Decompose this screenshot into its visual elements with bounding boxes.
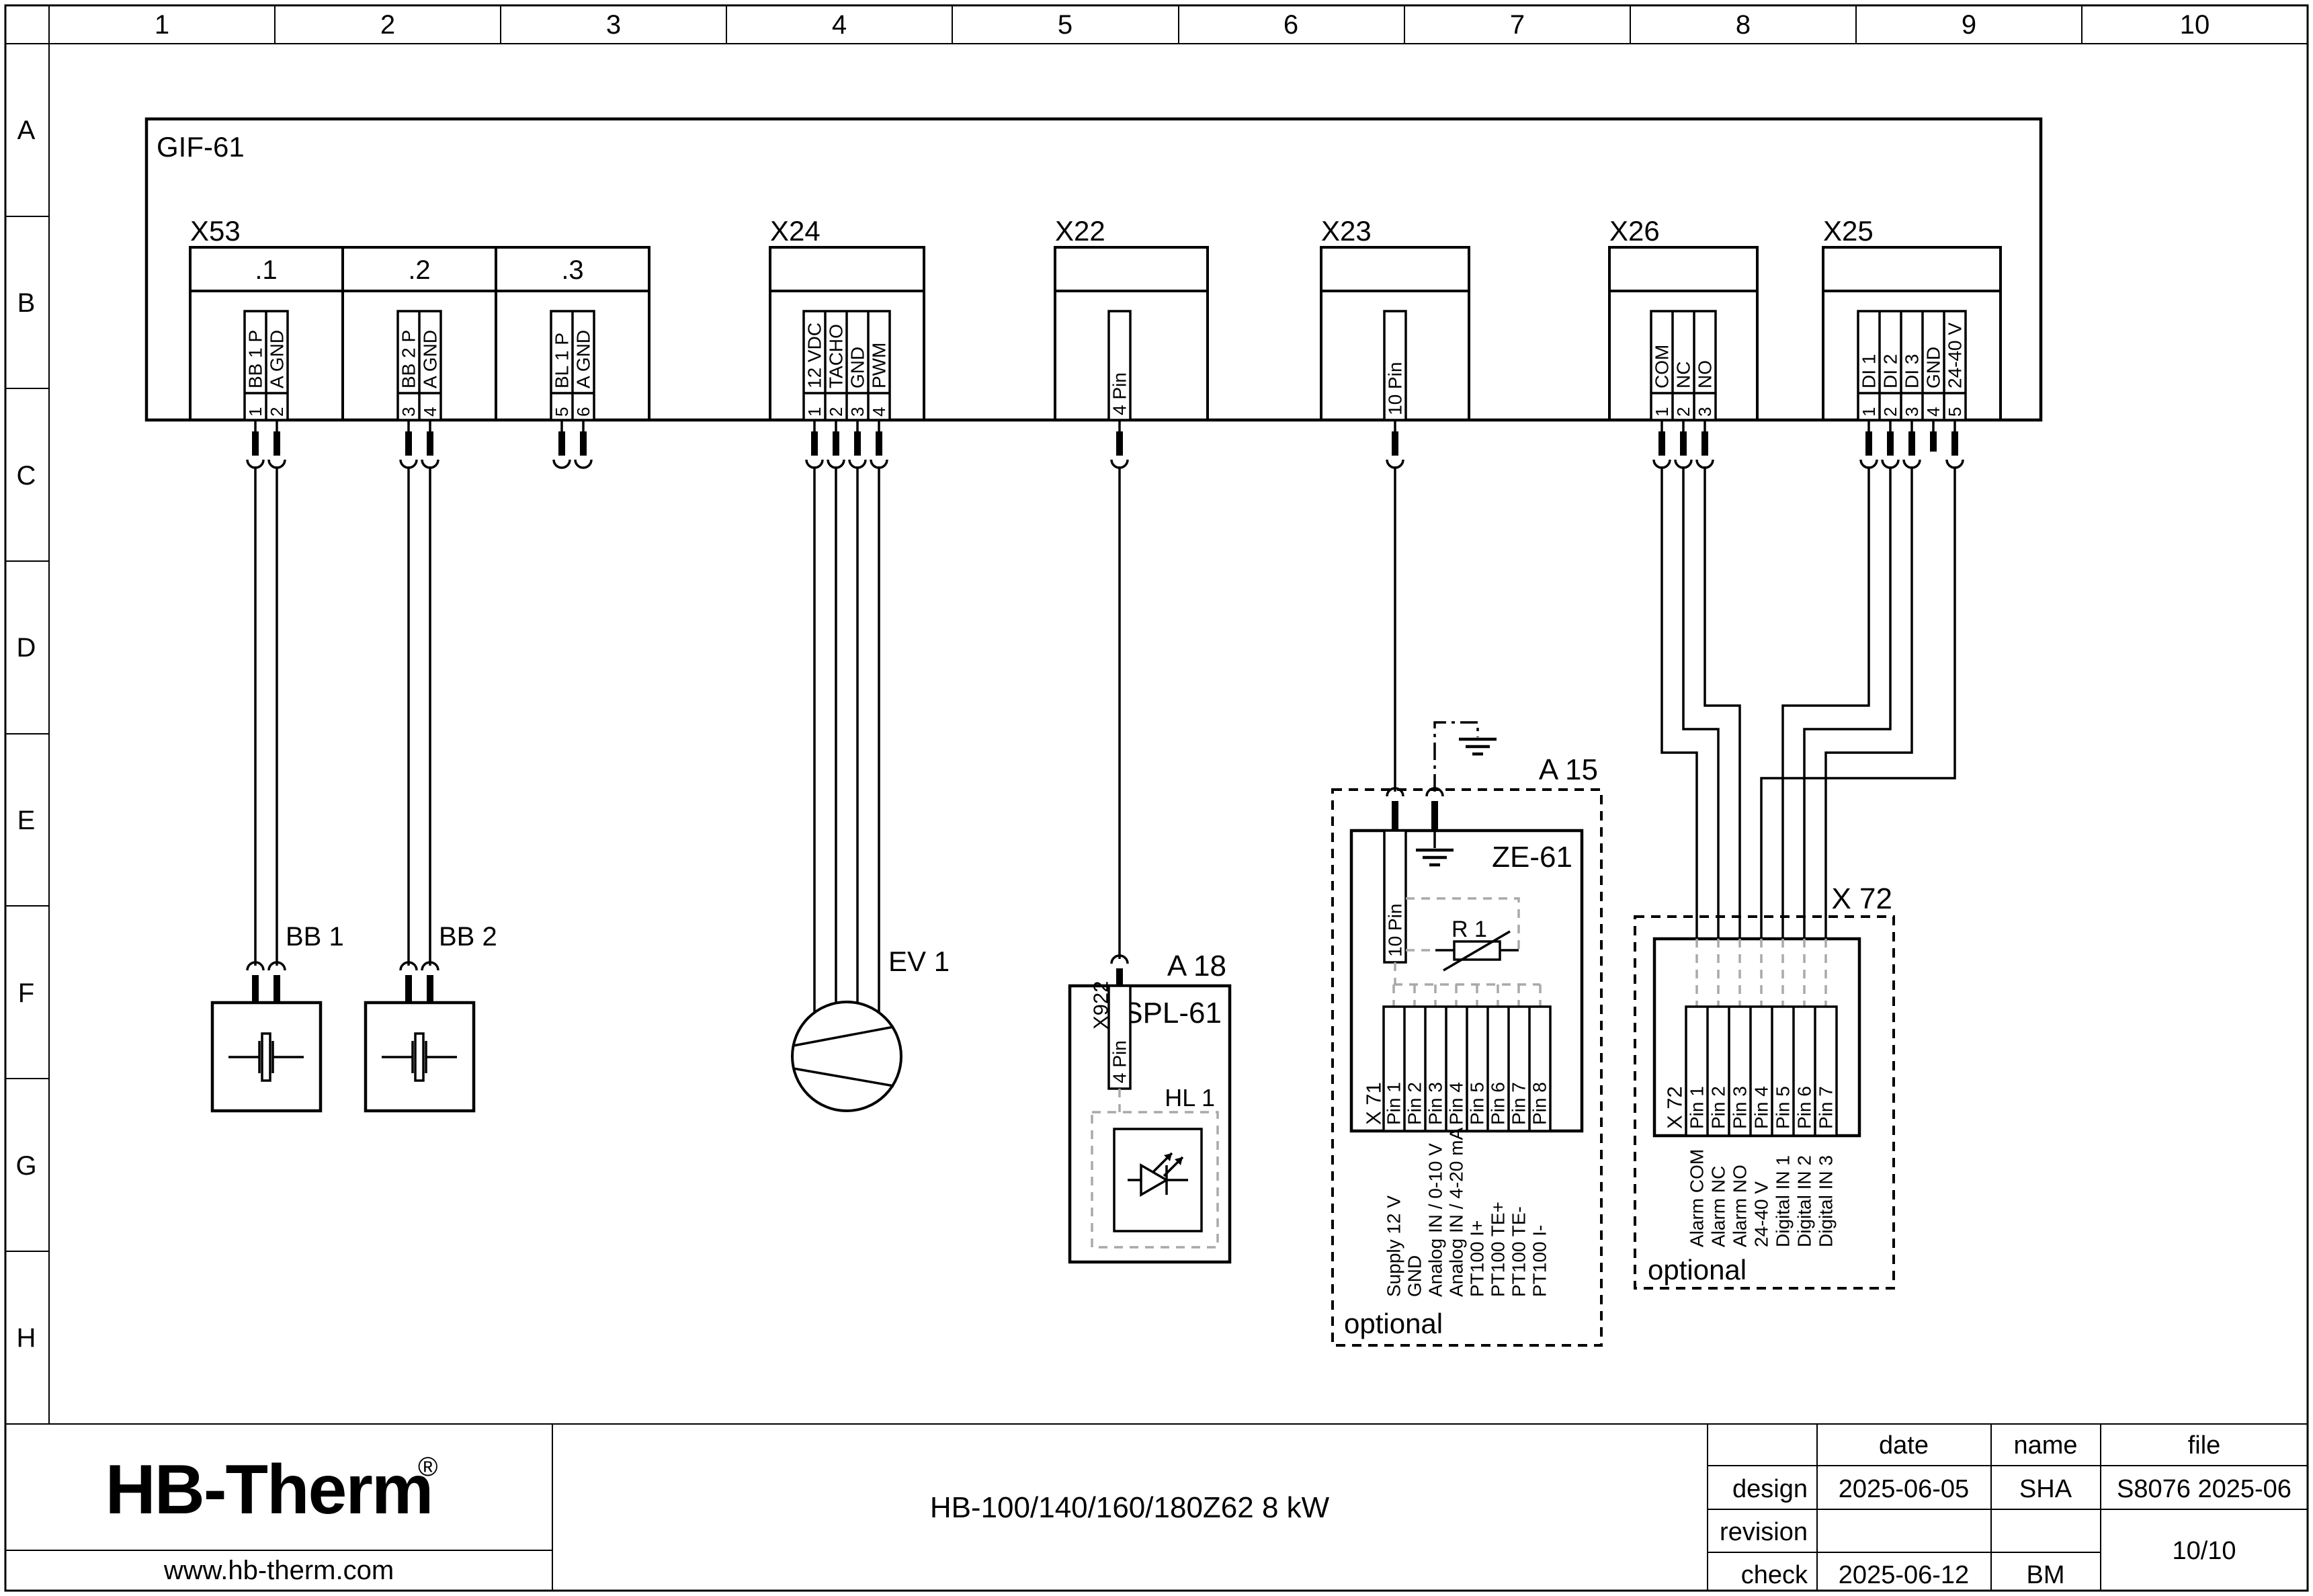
- x53-cell-1-label: .1: [255, 255, 277, 285]
- x26-pin-1-num: 1: [1652, 407, 1672, 417]
- x26-pin-2-name: NC: [1673, 362, 1694, 388]
- x24-pin-2-num: 2: [826, 407, 846, 417]
- x53-pin-1-name: BB 1 P: [245, 330, 266, 388]
- x26-pin-2-num: 2: [1673, 407, 1693, 417]
- x25-pin-3-num: 3: [1902, 407, 1922, 417]
- x53-pin-2-name: A GND: [267, 330, 288, 388]
- ruler-row-f: F: [18, 978, 34, 1008]
- ze61-module-label: ZE-61: [1492, 841, 1572, 874]
- x71-signal-6: PT100 TE+: [1488, 1202, 1509, 1297]
- x53-pin-5-num: 5: [552, 407, 572, 417]
- ruler-col-3: 3: [606, 10, 621, 40]
- ruler-col-10: 10: [2180, 10, 2210, 40]
- ruler-row-b: B: [17, 288, 36, 318]
- ruler-col-6: 6: [1284, 10, 1298, 40]
- x72-strip-label: X 72: [1663, 1086, 1687, 1129]
- gif-61-label: GIF-61: [157, 131, 245, 163]
- x24-pin-3-name: GND: [847, 347, 868, 388]
- x53-pin-6-name: A GND: [573, 330, 594, 388]
- ruler-row-e: E: [17, 806, 36, 835]
- x22-pin-label: 4 Pin: [1109, 372, 1130, 415]
- drawing-title: HB-100/140/160/180Z62 8 kW: [930, 1491, 1330, 1524]
- page-number: 10/10: [2172, 1537, 2236, 1565]
- col-header-date: date: [1879, 1431, 1929, 1460]
- x53-cell-3-label: .3: [561, 255, 583, 285]
- x25-pin-1-name: DI 1: [1859, 354, 1880, 388]
- x71-signal-3: Analog IN / 0-10 V: [1425, 1143, 1446, 1297]
- x25-pin-5-name: 24-40 V: [1945, 323, 1966, 388]
- x25-pin-4-num: 4: [1923, 407, 1943, 417]
- r1-label: R 1: [1452, 917, 1487, 942]
- x24-pin-1-name: 12 VDC: [804, 323, 825, 388]
- drawing-frame: 1 2 3 4 5 6 7 8 9 10 A B C D E F G H: [5, 5, 2308, 1591]
- check-name: BM: [2027, 1561, 2065, 1589]
- row-label-design: design: [1732, 1475, 1808, 1503]
- file-id: S8076 2025-06: [2117, 1475, 2291, 1503]
- x53-pin-5-name: BL 1 P: [552, 333, 573, 388]
- x53-pin-3-name: BB 2 P: [398, 330, 419, 388]
- x72-signal-6: Digital IN 2: [1794, 1155, 1815, 1247]
- a18-x922-label: X922: [1089, 981, 1113, 1030]
- x71-signal-1: Supply 12 V: [1384, 1195, 1404, 1297]
- x25-pin-2-name: DI 2: [1880, 354, 1901, 388]
- x25-pin-3-name: DI 3: [1902, 354, 1923, 388]
- connector-x25-label: X25: [1823, 215, 1874, 247]
- connector-x24-label: X24: [770, 215, 821, 247]
- x71-pin2: Pin 2: [1404, 1082, 1425, 1125]
- row-label-revision: revision: [1720, 1518, 1808, 1546]
- connector-x26-label: X26: [1609, 215, 1660, 247]
- x24-pin-4-name: PWM: [869, 343, 890, 388]
- x72-signal-4: 24-40 V: [1751, 1181, 1772, 1247]
- x25-pin-2-num: 2: [1880, 407, 1900, 417]
- x72-pin6: Pin 6: [1794, 1086, 1815, 1129]
- a15-label: A 15: [1539, 753, 1598, 786]
- x72-pin2: Pin 2: [1708, 1086, 1729, 1129]
- bb1-label: BB 1: [286, 922, 344, 952]
- x72-label: X 72: [1831, 882, 1892, 915]
- x53-pin-4-name: A GND: [420, 330, 441, 388]
- col-header-name: name: [2013, 1431, 2077, 1460]
- x72-signal-5: Digital IN 1: [1773, 1155, 1794, 1247]
- ruler-col-4: 4: [832, 10, 847, 40]
- connector-x22-label: X22: [1055, 215, 1105, 247]
- x53-pin-3-num: 3: [398, 407, 419, 417]
- x53-pin-6-num: 6: [573, 407, 593, 417]
- ruler-row-a: A: [17, 116, 36, 145]
- x72-pin4: Pin 4: [1751, 1086, 1772, 1129]
- connector-x23-label: X23: [1321, 215, 1372, 247]
- x25-pin-5-num: 5: [1945, 407, 1965, 417]
- ruler-col-5: 5: [1058, 10, 1073, 40]
- ruler-col-9: 9: [1962, 10, 1976, 40]
- a15-optional-label: optional: [1344, 1308, 1443, 1339]
- x26-pin-3-num: 3: [1695, 407, 1715, 417]
- x71-pin1: Pin 1: [1384, 1082, 1404, 1125]
- x71-pin7: Pin 7: [1509, 1082, 1529, 1125]
- x72-optional-label: optional: [1648, 1254, 1747, 1286]
- x53-cell-2-label: .2: [408, 255, 430, 285]
- x72-pin3: Pin 3: [1730, 1086, 1751, 1129]
- website-link: www.hb-therm.com: [163, 1556, 394, 1585]
- x72-pin5: Pin 5: [1773, 1086, 1794, 1129]
- x71-pin4: Pin 4: [1446, 1082, 1467, 1125]
- ruler-row-d: D: [17, 633, 36, 663]
- x71-signal-5: PT100 I+: [1467, 1220, 1488, 1297]
- ruler-row-g: G: [15, 1151, 36, 1181]
- hb-therm-logo: HB-Therm: [106, 1451, 433, 1529]
- ruler-col-8: 8: [1736, 10, 1751, 40]
- x71-pin6: Pin 6: [1488, 1082, 1509, 1125]
- x24-pin-3-num: 3: [847, 407, 868, 417]
- x72-signal-7: Digital IN 3: [1816, 1155, 1837, 1247]
- x25-pin-4-name: GND: [1923, 347, 1944, 388]
- x53-pin-1-num: 1: [245, 407, 265, 417]
- ruler-row-h: H: [17, 1323, 36, 1353]
- x25-pin-1-num: 1: [1859, 407, 1879, 417]
- x71-signal-2: GND: [1404, 1255, 1425, 1297]
- a18-module-label: SPL-61: [1123, 997, 1222, 1030]
- x72-signal-2: Alarm NC: [1708, 1166, 1729, 1247]
- a18-x922-pin-label: 4 Pin: [1109, 1040, 1130, 1083]
- ruler-row-c: C: [17, 461, 36, 491]
- design-name: SHA: [2019, 1475, 2072, 1503]
- x26-pin-1-name: COM: [1652, 345, 1673, 388]
- x72-pin1: Pin 1: [1687, 1086, 1708, 1129]
- registered-mark: ®: [418, 1452, 437, 1482]
- x71-pin3: Pin 3: [1425, 1082, 1446, 1125]
- ev1-fan-icon: [792, 1002, 901, 1111]
- x23-pin-label: 10 Pin: [1385, 362, 1406, 415]
- x72-pin7: Pin 7: [1816, 1086, 1837, 1129]
- ruler-col-1: 1: [155, 10, 169, 40]
- ev1-label: EV 1: [888, 946, 950, 977]
- connector-x53-label: X53: [190, 215, 241, 247]
- x72-signal-1: Alarm COM: [1687, 1149, 1708, 1247]
- x24-pin-1-num: 1: [804, 407, 825, 417]
- check-date: 2025-06-12: [1839, 1561, 1969, 1589]
- x71-signal-8: PT100 I-: [1529, 1225, 1550, 1297]
- row-label-check: check: [1741, 1561, 1808, 1589]
- x24-pin-2-name: TACHO: [826, 324, 847, 388]
- x53-pin-2-num: 2: [267, 407, 287, 417]
- col-header-file: file: [2188, 1431, 2221, 1460]
- design-date: 2025-06-05: [1839, 1475, 1969, 1503]
- a18-hl1-label: HL 1: [1165, 1084, 1215, 1111]
- x71-pin8: Pin 8: [1529, 1082, 1550, 1125]
- bb2-label: BB 2: [439, 922, 497, 952]
- ze61-10pin-label: 10 Pin: [1385, 904, 1406, 957]
- x71-signal-7: PT100 TE-: [1509, 1206, 1529, 1297]
- x26-pin-3-name: NO: [1695, 360, 1716, 388]
- x72-signal-3: Alarm NO: [1730, 1165, 1751, 1247]
- a18-label: A 18: [1167, 950, 1226, 982]
- brand-logo: HB-Therm ®: [106, 1451, 438, 1529]
- x53-pin-4-num: 4: [420, 407, 440, 417]
- schematic-page: 1 2 3 4 5 6 7 8 9 10 A B C D E F G H GIF…: [0, 0, 2313, 1596]
- x71-pin5: Pin 5: [1467, 1082, 1488, 1125]
- ruler-col-2: 2: [380, 10, 395, 40]
- ze61-x71-label: X 71: [1362, 1082, 1386, 1125]
- x71-signal-4: Analog IN / 4-20 mA: [1446, 1128, 1467, 1297]
- x24-pin-4-num: 4: [869, 407, 889, 417]
- ruler-col-7: 7: [1510, 10, 1525, 40]
